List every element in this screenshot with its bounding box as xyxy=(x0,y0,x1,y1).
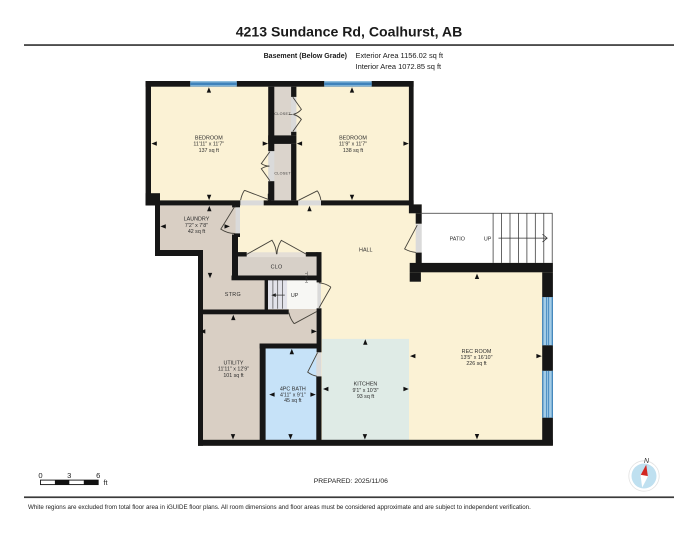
svg-text:101 sq ft: 101 sq ft xyxy=(223,373,244,379)
svg-text:11'9" x 11'7": 11'9" x 11'7" xyxy=(339,142,367,148)
svg-text:Interior Area 1072.85 sq ft: Interior Area 1072.85 sq ft xyxy=(356,62,443,71)
svg-text:93 sq ft: 93 sq ft xyxy=(357,394,375,400)
svg-text:3: 3 xyxy=(67,471,71,480)
svg-text:UP: UP xyxy=(291,293,299,299)
svg-text:CLOSET: CLOSET xyxy=(274,171,291,175)
svg-text:138 sq ft: 138 sq ft xyxy=(343,148,364,154)
svg-text:6: 6 xyxy=(96,471,100,480)
svg-text:UTILITY: UTILITY xyxy=(223,360,243,366)
svg-text:PREPARED: 2025/11/06: PREPARED: 2025/11/06 xyxy=(314,478,388,485)
svg-text:45 sq ft: 45 sq ft xyxy=(284,398,302,404)
svg-text:42 sq ft: 42 sq ft xyxy=(188,229,206,235)
svg-text:CLO: CLO xyxy=(271,265,283,271)
svg-text:13'5" x 16'10": 13'5" x 16'10" xyxy=(461,355,493,361)
svg-text:ft: ft xyxy=(104,478,108,487)
svg-text:BEDROOM: BEDROOM xyxy=(339,135,367,141)
svg-text:PATIO: PATIO xyxy=(450,236,465,242)
svg-text:BEDROOM: BEDROOM xyxy=(195,135,223,141)
svg-text:Basement (Below Grade): Basement (Below Grade) xyxy=(264,53,347,60)
svg-text:11'11" x 11'7": 11'11" x 11'7" xyxy=(193,142,224,148)
svg-text:STRG: STRG xyxy=(225,292,241,298)
svg-text:7'2" x 7'8": 7'2" x 7'8" xyxy=(185,223,208,229)
svg-text:0: 0 xyxy=(38,471,42,480)
svg-text:HALL: HALL xyxy=(304,271,309,283)
svg-text:Exterior Area 1156.02 sq ft: Exterior Area 1156.02 sq ft xyxy=(356,51,444,60)
svg-text:CLOSET: CLOSET xyxy=(274,112,291,116)
svg-text:REC ROOM: REC ROOM xyxy=(462,349,492,355)
svg-text:LAUNDRY: LAUNDRY xyxy=(184,217,210,223)
svg-text:KITCHEN: KITCHEN xyxy=(354,382,378,388)
svg-text:226 sq ft: 226 sq ft xyxy=(466,361,487,367)
svg-text:11'11" x 12'9": 11'11" x 12'9" xyxy=(218,367,249,373)
svg-text:4213 Sundance Rd, Coalhurst, A: 4213 Sundance Rd, Coalhurst, AB xyxy=(236,24,463,40)
svg-text:9'1" x 10'3": 9'1" x 10'3" xyxy=(352,388,378,394)
svg-text:HALL: HALL xyxy=(359,248,373,254)
svg-text:UP: UP xyxy=(484,236,492,242)
svg-text:137 sq ft: 137 sq ft xyxy=(199,148,220,154)
svg-text:White regions are excluded fro: White regions are excluded from total fl… xyxy=(28,504,531,511)
